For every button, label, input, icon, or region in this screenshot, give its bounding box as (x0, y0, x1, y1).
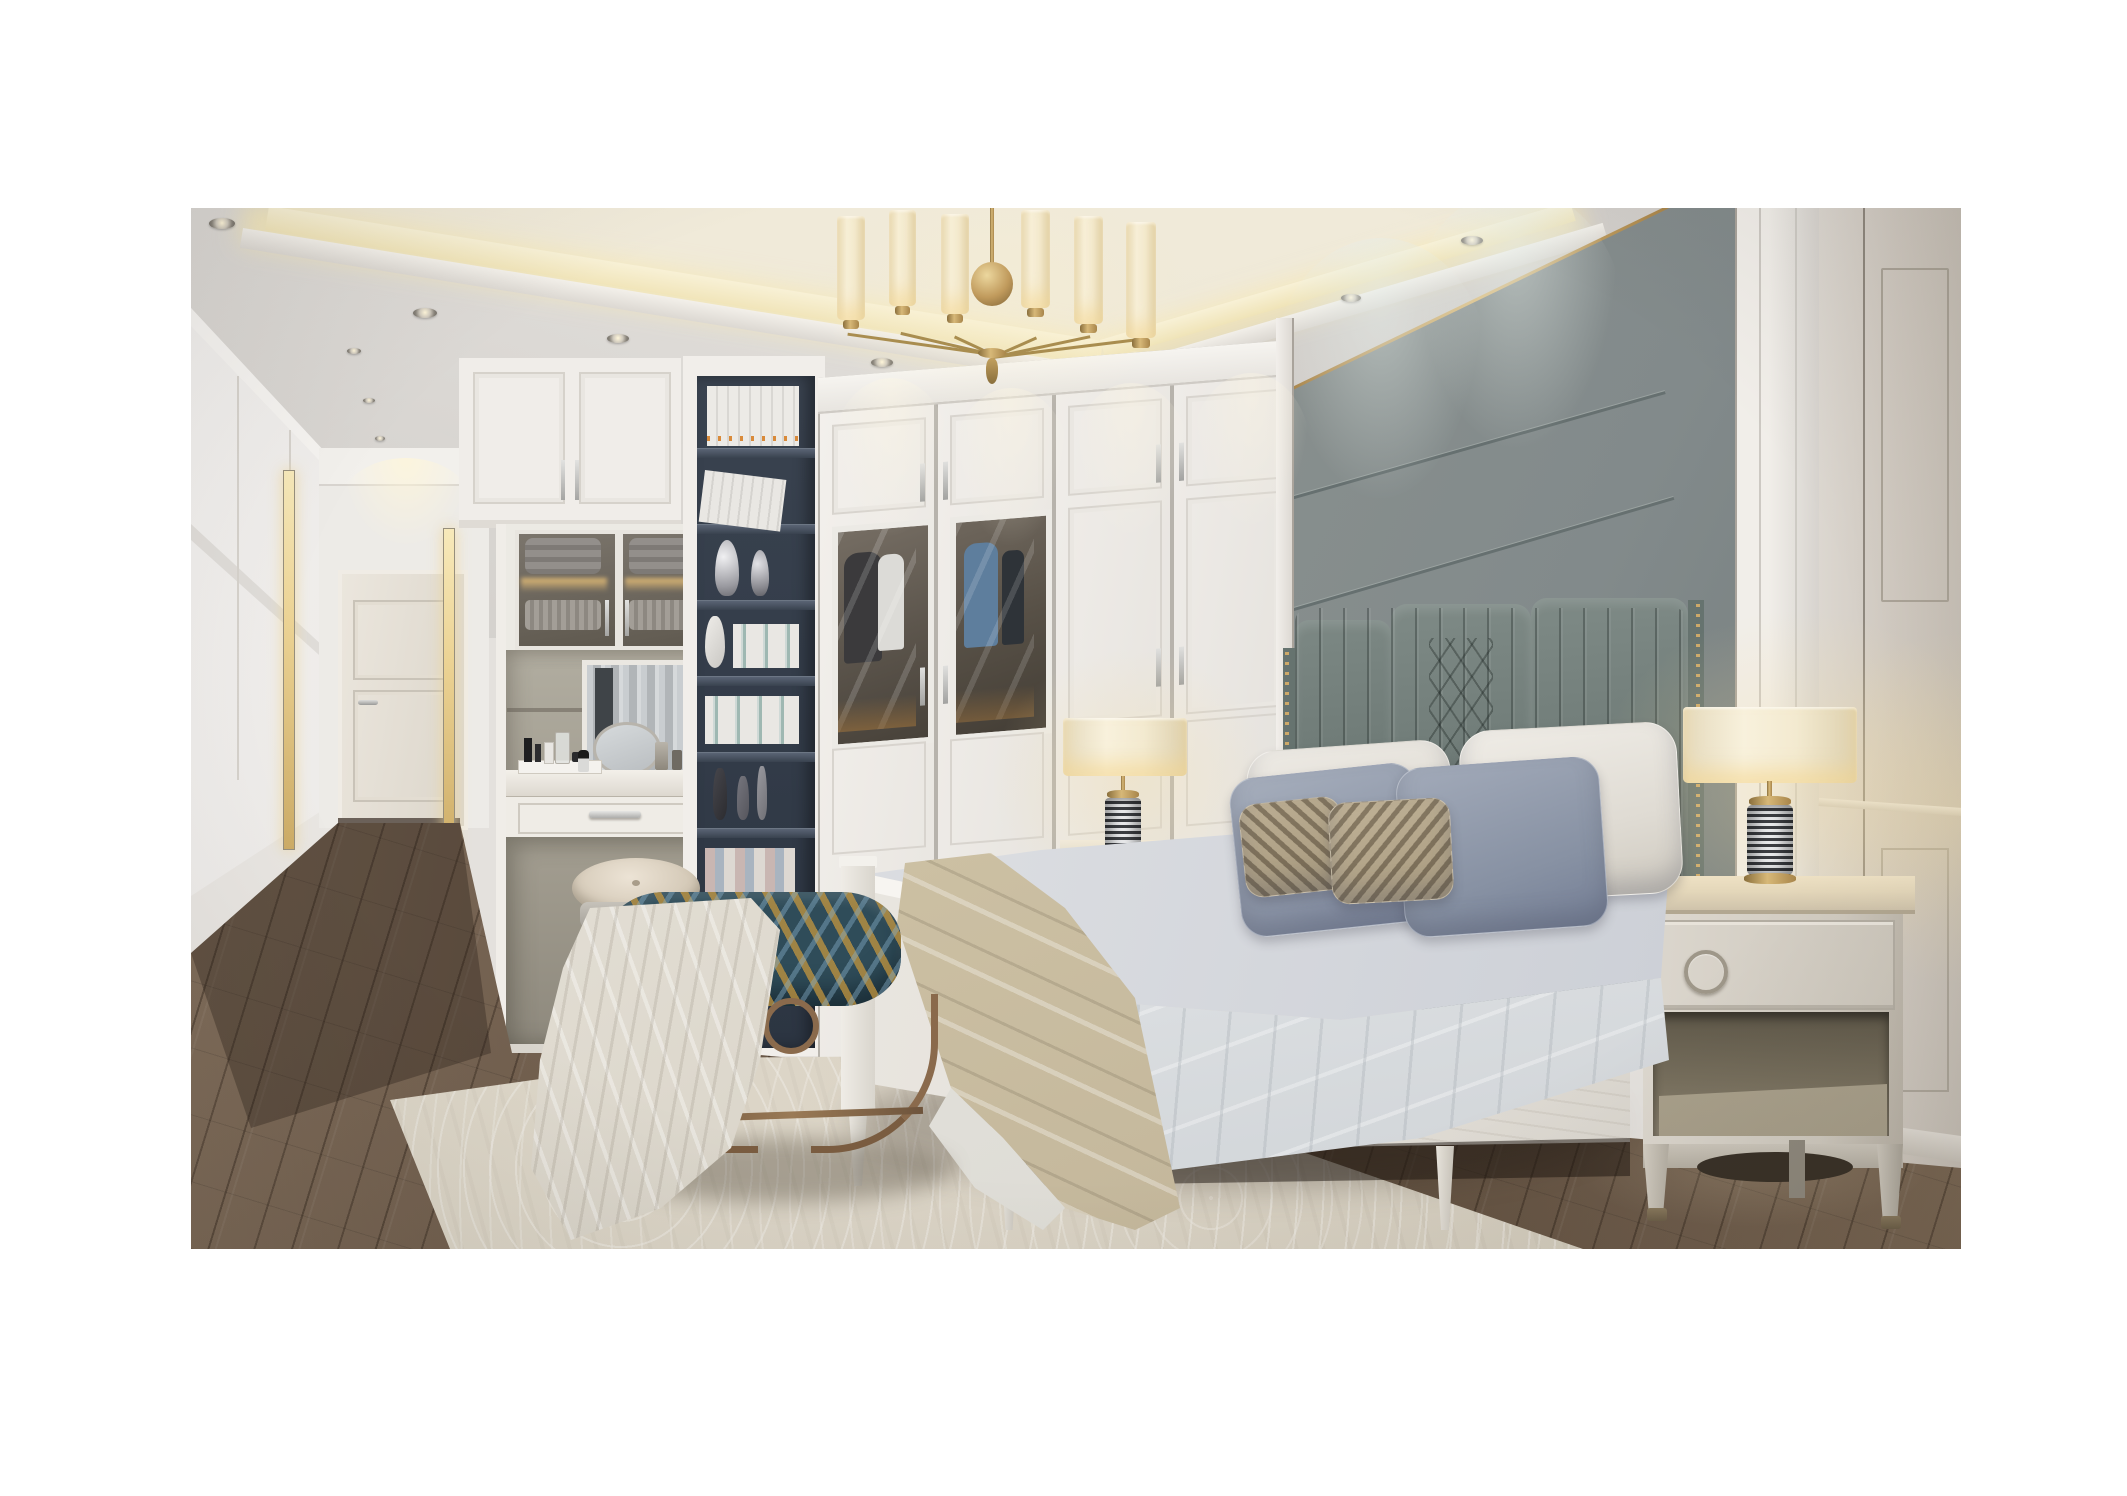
photo-vignette (191, 208, 1961, 1249)
page-canvas (0, 0, 2127, 1496)
bedroom-photo (191, 208, 1961, 1249)
